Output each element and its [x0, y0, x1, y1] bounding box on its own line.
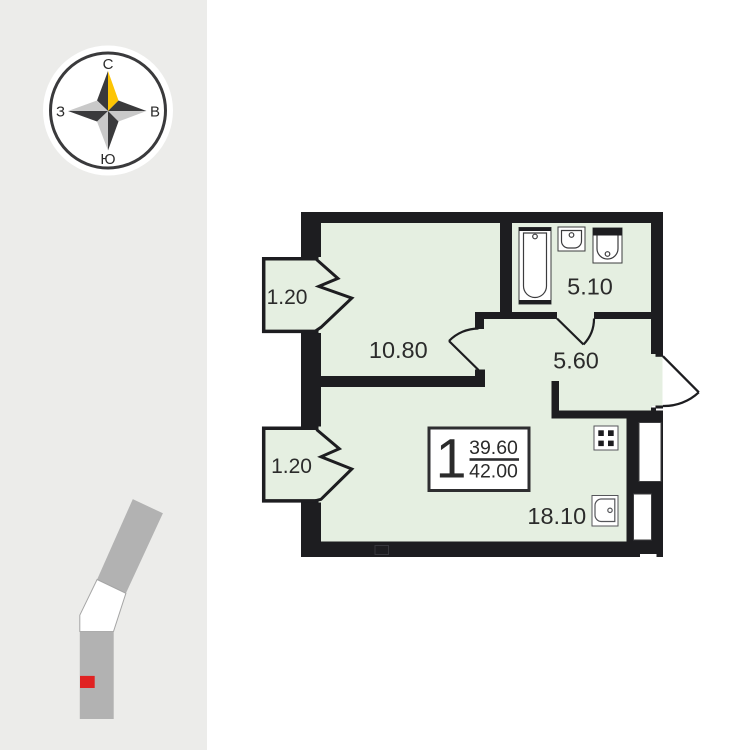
svg-text:42.00: 42.00	[469, 460, 518, 482]
svg-text:С: С	[103, 56, 114, 73]
svg-text:Ю: Ю	[100, 151, 115, 168]
svg-text:З: З	[56, 104, 65, 121]
svg-text:5.10: 5.10	[567, 274, 613, 300]
svg-text:1: 1	[436, 428, 467, 490]
svg-text:1.20: 1.20	[271, 455, 312, 478]
svg-text:39.60: 39.60	[469, 437, 518, 459]
svg-text:1.20: 1.20	[267, 286, 308, 309]
svg-text:10.80: 10.80	[369, 337, 428, 363]
svg-text:18.10: 18.10	[527, 503, 586, 529]
svg-text:В: В	[150, 104, 160, 121]
svg-text:5.60: 5.60	[553, 348, 599, 374]
